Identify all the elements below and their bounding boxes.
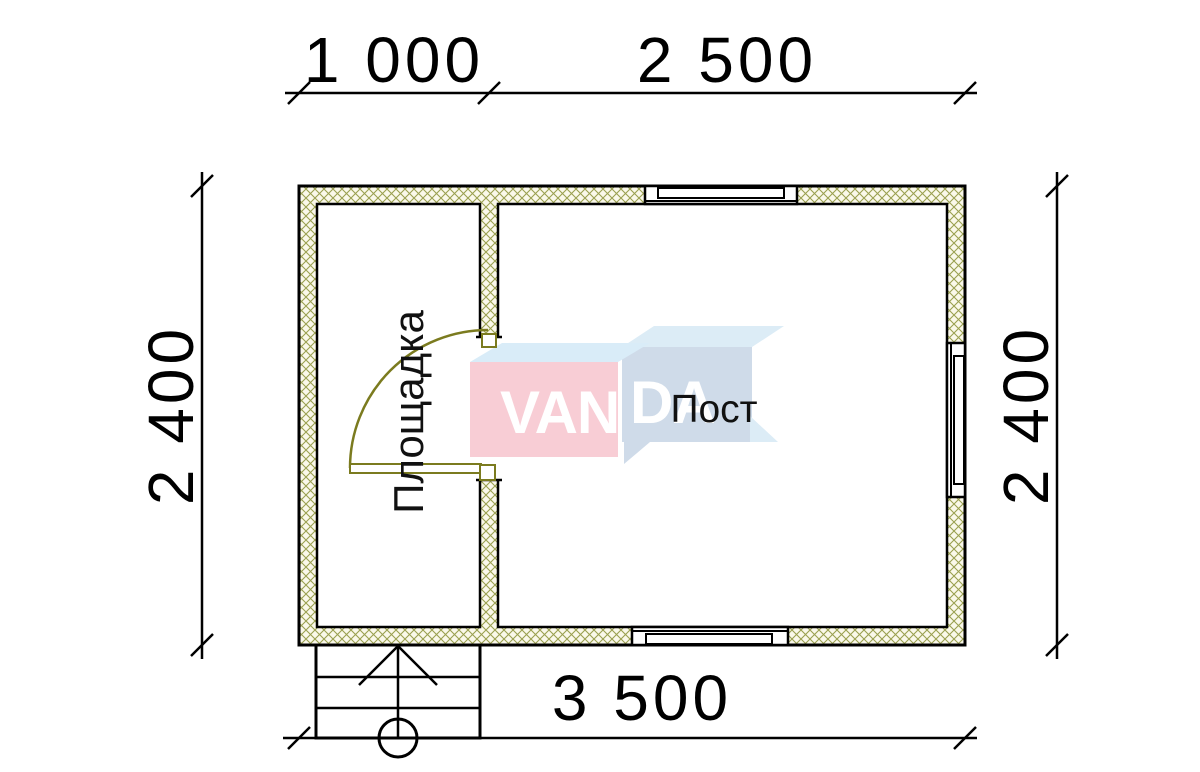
window-right	[947, 343, 965, 497]
floor-plan-page: 1 000 2 500 3 500 2 400 2 400 VAN DA Пло…	[0, 0, 1200, 772]
entrance-steps	[316, 645, 480, 757]
dim-label-bottom: 3 500	[552, 662, 732, 734]
dim-label-top-right: 2 500	[637, 24, 817, 96]
door-hinge-jamb	[480, 465, 495, 480]
door-strike-jamb	[482, 334, 496, 347]
window-top-sash	[658, 188, 784, 198]
window-bottom	[632, 627, 788, 645]
window-right-sash	[954, 356, 964, 484]
room-label-vestibule: Площадка	[385, 310, 432, 514]
window-bottom-sash	[646, 634, 772, 644]
window-top	[645, 186, 797, 204]
room-label-main: Пост	[670, 388, 757, 431]
floor-plan-canvas: 1 000 2 500 3 500 2 400 2 400 VAN DA Пло…	[0, 0, 1200, 772]
watermark-text-left: VAN	[500, 379, 619, 446]
dim-label-left: 2 400	[135, 325, 207, 505]
dim-label-right: 2 400	[990, 325, 1062, 505]
dim-label-top-left: 1 000	[304, 24, 484, 96]
